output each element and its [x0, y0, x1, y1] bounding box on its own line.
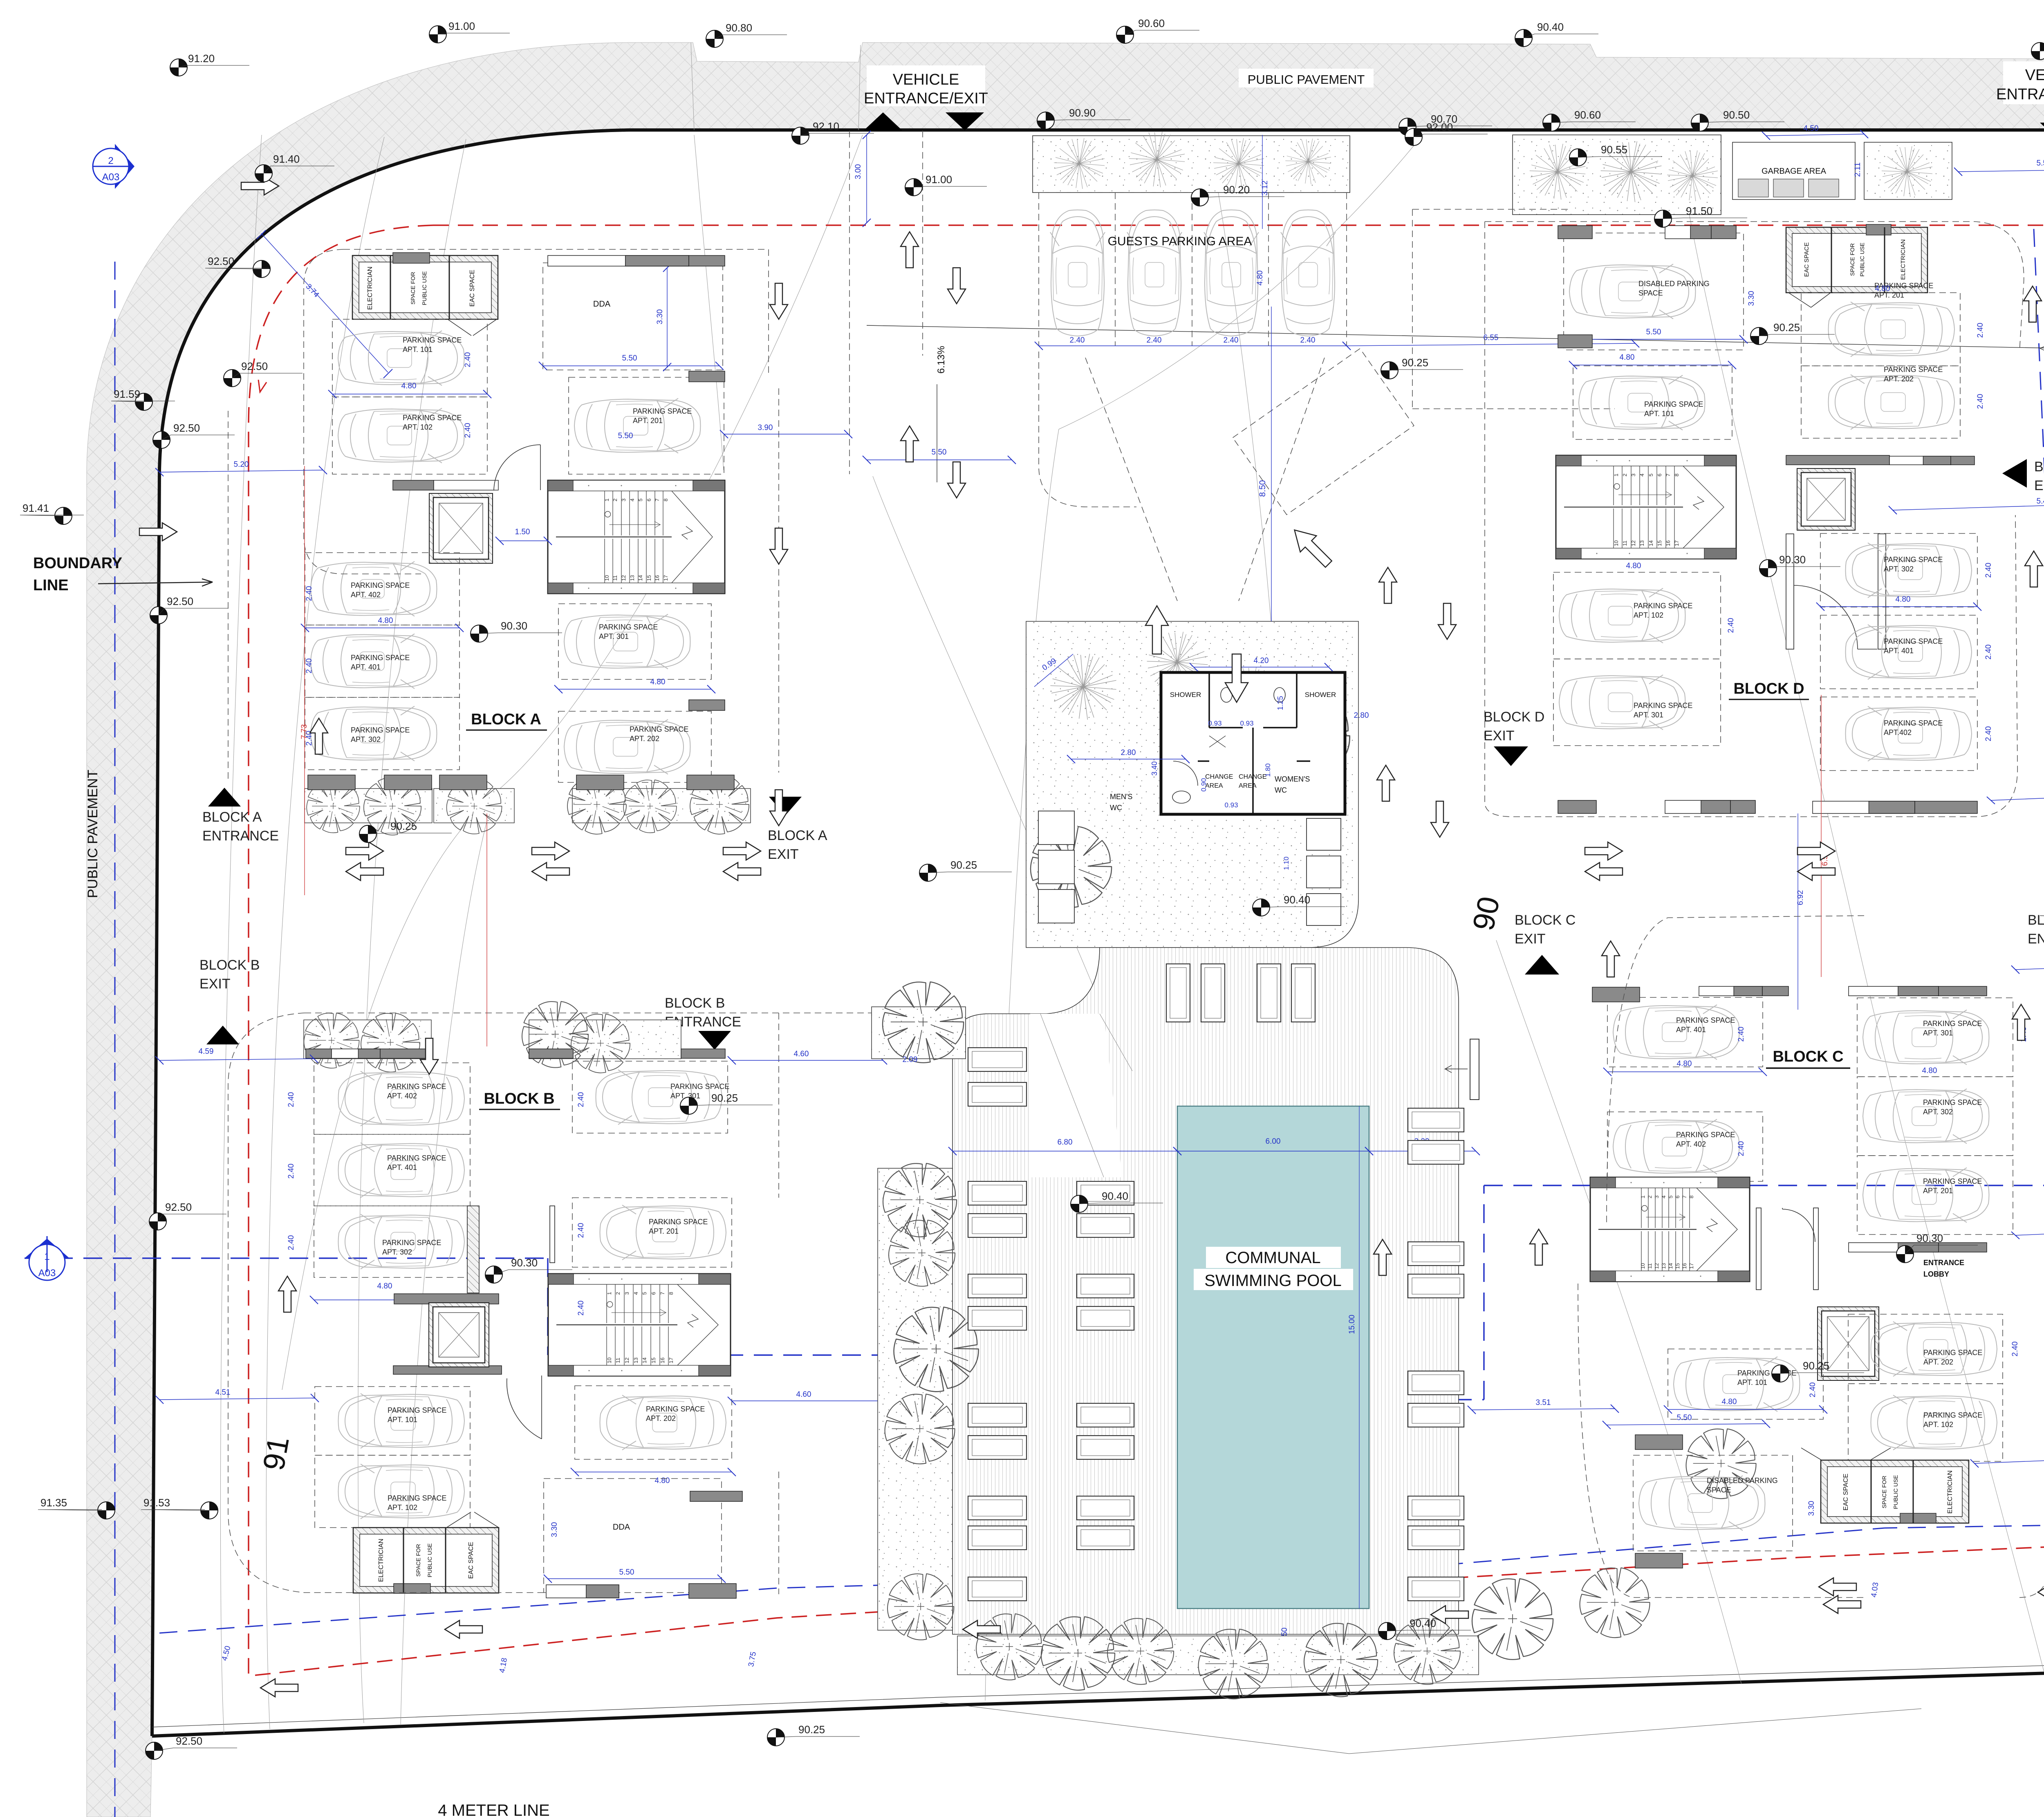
svg-text:3: 3: [1654, 1195, 1660, 1198]
svg-text:APT. 301: APT. 301: [1923, 1029, 1953, 1037]
svg-text:VEHICLE: VEHICLE: [2025, 67, 2044, 84]
svg-text:PUBLIC USE: PUBLIC USE: [1892, 1475, 1899, 1509]
svg-text:0.93: 0.93: [1240, 719, 1253, 727]
svg-text:90.25: 90.25: [1402, 356, 1428, 369]
svg-text:SPACE FOR: SPACE FOR: [1849, 243, 1856, 276]
svg-text:BLOCK B: BLOCK B: [199, 957, 260, 973]
svg-text:APT. 101: APT. 101: [1737, 1378, 1767, 1387]
svg-text:92.00: 92.00: [1426, 121, 1453, 133]
svg-text:APT. 301: APT. 301: [599, 632, 629, 641]
svg-text:4.80: 4.80: [1722, 1398, 1737, 1406]
svg-text:8: 8: [1688, 1195, 1694, 1198]
svg-text:8.50: 8.50: [1258, 480, 1267, 497]
svg-text:4.80: 4.80: [377, 1282, 392, 1290]
svg-text:PUBLIC USE: PUBLIC USE: [426, 1543, 433, 1577]
svg-text:PARKING SPACE: PARKING SPACE: [1884, 365, 1943, 374]
svg-text:90.25: 90.25: [950, 859, 977, 871]
svg-text:90: 90: [1466, 894, 1506, 934]
svg-text:5.50: 5.50: [2037, 159, 2044, 168]
svg-text:SPACE: SPACE: [1707, 1486, 1731, 1494]
svg-text:PARKING SPACE: PARKING SPACE: [387, 1082, 446, 1091]
svg-text:6: 6: [646, 498, 652, 501]
svg-text:DISABLED PARKING: DISABLED PARKING: [1707, 1476, 1778, 1485]
svg-text:CHANGE: CHANGE: [1239, 773, 1266, 780]
svg-text:3: 3: [624, 1292, 630, 1295]
svg-text:92.50: 92.50: [173, 422, 200, 434]
svg-text:ELECTRICIAN: ELECTRICIAN: [1900, 239, 1907, 280]
svg-text:2.40: 2.40: [1976, 394, 1985, 409]
svg-text:5.50: 5.50: [1677, 1414, 1692, 1422]
svg-text:4.60: 4.60: [796, 1390, 811, 1399]
svg-text:14: 14: [1648, 540, 1654, 546]
svg-text:3.30: 3.30: [656, 309, 664, 325]
svg-text:10: 10: [604, 575, 610, 581]
svg-text:4: 4: [1639, 473, 1645, 476]
svg-text:LINE: LINE: [33, 577, 69, 594]
svg-text:CHANGE: CHANGE: [1205, 773, 1233, 780]
svg-text:5.50: 5.50: [618, 432, 633, 440]
svg-text:2.40: 2.40: [1976, 323, 1985, 338]
svg-text:5.50: 5.50: [619, 1568, 634, 1577]
svg-text:ENTRANCE: ENTRANCE: [1923, 1259, 1964, 1267]
svg-text:91: 91: [256, 1434, 296, 1473]
svg-text:11: 11: [612, 575, 618, 581]
svg-text:91.59: 91.59: [114, 388, 140, 400]
svg-text:APT. 102: APT. 102: [403, 423, 433, 431]
svg-text:PARKING SPACE: PARKING SPACE: [1923, 1411, 1982, 1419]
svg-text:BLOCK B: BLOCK B: [665, 995, 725, 1011]
svg-text:5: 5: [637, 498, 643, 501]
svg-text:APT. 202: APT. 202: [1923, 1358, 1953, 1366]
svg-text:11: 11: [615, 1358, 621, 1363]
svg-text:APT. 201: APT. 201: [1923, 1187, 1953, 1195]
svg-text:PARKING SPACE: PARKING SPACE: [670, 1082, 729, 1091]
svg-text:4.80: 4.80: [1256, 271, 1264, 286]
svg-text:MEN'S: MEN'S: [1110, 793, 1132, 801]
svg-text:PARKING SPACE: PARKING SPACE: [646, 1405, 705, 1413]
svg-text:BLOCK A: BLOCK A: [471, 711, 541, 728]
svg-text:PARKING SPACE: PARKING SPACE: [388, 1406, 446, 1414]
svg-text:1: 1: [1640, 1195, 1646, 1198]
svg-text:BLOCK C: BLOCK C: [2028, 912, 2044, 928]
svg-text:4: 4: [629, 498, 635, 501]
svg-text:PARKING SPACE: PARKING SPACE: [351, 581, 410, 589]
svg-text:13: 13: [633, 1358, 639, 1363]
svg-text:90.60: 90.60: [1138, 17, 1165, 29]
svg-text:DISABLED PARKING: DISABLED PARKING: [1638, 280, 1710, 288]
svg-text:3.12: 3.12: [1261, 181, 1269, 196]
svg-text:EXIT: EXIT: [1515, 931, 1546, 947]
svg-text:2: 2: [615, 1292, 621, 1295]
svg-text:APT. 401: APT. 401: [1884, 647, 1914, 655]
svg-text:EAC SPACE: EAC SPACE: [469, 270, 476, 307]
svg-text:4.51: 4.51: [215, 1388, 231, 1397]
svg-text:11: 11: [1622, 540, 1628, 546]
svg-text:91.41: 91.41: [22, 502, 49, 514]
svg-text:2.40: 2.40: [577, 1092, 585, 1107]
svg-text:APT. 402: APT. 402: [387, 1092, 417, 1100]
svg-text:12: 12: [1654, 1263, 1660, 1269]
svg-text:PUBLIC PAVEMENT: PUBLIC PAVEMENT: [85, 770, 101, 898]
svg-text:6: 6: [650, 1292, 657, 1295]
svg-text:4.80: 4.80: [1620, 353, 1635, 362]
svg-text:3.90: 3.90: [758, 423, 773, 432]
svg-text:PUBLIC USE: PUBLIC USE: [1859, 242, 1865, 276]
svg-text:2.40: 2.40: [287, 1164, 296, 1179]
svg-text:8: 8: [668, 1292, 674, 1295]
svg-text:2.40: 2.40: [1984, 563, 1993, 578]
svg-text:A03: A03: [102, 172, 120, 183]
svg-text:1: 1: [1613, 473, 1619, 476]
svg-text:2.11: 2.11: [1853, 162, 1862, 177]
svg-text:WC: WC: [1275, 786, 1287, 794]
svg-text:92.10: 92.10: [813, 120, 839, 132]
svg-text:SPACE FOR: SPACE FOR: [410, 272, 416, 305]
svg-text:3.40: 3.40: [1150, 761, 1159, 775]
svg-text:90.25: 90.25: [798, 1723, 825, 1736]
svg-text:PARKING SPACE: PARKING SPACE: [1884, 637, 1943, 645]
svg-text:92.50: 92.50: [165, 1201, 192, 1213]
svg-text:DDA: DDA: [613, 1523, 630, 1532]
svg-text:2.80: 2.80: [1121, 748, 1136, 757]
svg-text:APT. 302: APT. 302: [382, 1248, 412, 1256]
svg-text:2.40: 2.40: [464, 352, 472, 367]
svg-text:92.50: 92.50: [241, 360, 268, 372]
svg-text:13: 13: [1639, 540, 1645, 546]
svg-text:PARKING SPACE: PARKING SPACE: [1634, 602, 1692, 610]
svg-text:3.51: 3.51: [1536, 1398, 1551, 1407]
svg-text:5.50: 5.50: [622, 354, 637, 363]
svg-text:5.50: 5.50: [1646, 328, 1661, 336]
svg-text:ELECTRICIAN: ELECTRICIAN: [1947, 1470, 1954, 1514]
svg-text:PARKING SPACE: PARKING SPACE: [649, 1218, 708, 1226]
svg-text:91.40: 91.40: [273, 153, 300, 165]
svg-text:4.80: 4.80: [378, 616, 393, 625]
svg-text:PARKING SPACE: PARKING SPACE: [403, 414, 462, 422]
svg-text:5: 5: [1667, 1195, 1674, 1198]
svg-text:ENTRANCE: ENTRANCE: [2028, 931, 2044, 947]
svg-text:APT. 102: APT. 102: [388, 1503, 417, 1512]
svg-text:EAC SPACE: EAC SPACE: [1803, 242, 1810, 277]
svg-text:8: 8: [1674, 473, 1680, 476]
svg-text:5.20: 5.20: [234, 460, 249, 469]
svg-text:5: 5: [1648, 473, 1654, 476]
svg-text:90.30: 90.30: [511, 1257, 538, 1269]
svg-text:PARKING SPACE: PARKING SPACE: [1676, 1016, 1735, 1024]
svg-text:90.60: 90.60: [1574, 109, 1601, 121]
svg-text:90.40: 90.40: [1284, 894, 1310, 906]
svg-text:1: 1: [604, 498, 610, 501]
svg-text:4.20: 4.20: [1254, 656, 1269, 665]
svg-text:4.80: 4.80: [401, 382, 417, 390]
svg-text:PUBLIC PAVEMENT: PUBLIC PAVEMENT: [1248, 72, 1365, 87]
svg-text:7: 7: [654, 498, 660, 501]
svg-text:91.53: 91.53: [143, 1497, 170, 1509]
svg-text:6.80: 6.80: [1058, 1138, 1073, 1147]
svg-text:5.50: 5.50: [932, 448, 947, 457]
svg-text:APT. 402: APT. 402: [351, 591, 381, 599]
svg-text:90.25: 90.25: [1773, 321, 1800, 334]
svg-text:3.30: 3.30: [1807, 1501, 1816, 1516]
svg-text:EXIT: EXIT: [768, 847, 799, 862]
svg-text:PARKING SPACE: PARKING SPACE: [1884, 719, 1943, 727]
svg-text:2.40: 2.40: [577, 1223, 585, 1238]
svg-text:BLOCK C: BLOCK C: [1515, 912, 1576, 928]
svg-text:8: 8: [663, 498, 669, 501]
svg-text:PARKING SPACE: PARKING SPACE: [387, 1154, 446, 1162]
svg-text:APT. 101: APT. 101: [388, 1416, 417, 1424]
svg-text:2: 2: [1622, 473, 1628, 476]
svg-text:2.40: 2.40: [1984, 645, 1993, 660]
svg-text:91.20: 91.20: [188, 52, 215, 65]
svg-text:4: 4: [1661, 1195, 1667, 1198]
svg-text:PARKING SPACE: PARKING SPACE: [1676, 1131, 1735, 1139]
svg-text:92.50: 92.50: [208, 255, 234, 267]
svg-text:PARKING SPACE: PARKING SPACE: [1923, 1098, 1982, 1107]
svg-text:WC: WC: [1110, 804, 1122, 812]
svg-text:1.80: 1.80: [1264, 763, 1272, 777]
svg-text:SPACE FOR: SPACE FOR: [1881, 1476, 1887, 1508]
svg-text:APT. 202: APT. 202: [646, 1414, 676, 1423]
svg-text:PARKING SPACE: PARKING SPACE: [1923, 1019, 1982, 1028]
svg-text:17: 17: [668, 1358, 674, 1363]
svg-text:10: 10: [606, 1358, 612, 1363]
svg-text:12: 12: [624, 1358, 630, 1363]
svg-text:PARKING SPACE: PARKING SPACE: [388, 1494, 446, 1502]
svg-text:PARKING SPACE: PARKING SPACE: [630, 725, 688, 733]
svg-text:APT. 202: APT. 202: [630, 735, 659, 743]
svg-text:ENTRANCE/EXIT: ENTRANCE/EXIT: [864, 90, 988, 107]
svg-text:2.40: 2.40: [1984, 726, 1993, 742]
svg-text:90.25: 90.25: [1803, 1360, 1829, 1372]
svg-text:PARKING SPACE: PARKING SPACE: [1923, 1349, 1982, 1357]
svg-text:2.40: 2.40: [287, 1235, 296, 1250]
svg-text:APT. 402: APT. 402: [1676, 1140, 1706, 1148]
svg-text:BLOCK D: BLOCK D: [2034, 459, 2044, 475]
svg-text:2.40: 2.40: [2011, 1342, 2019, 1357]
svg-text:3: 3: [1630, 473, 1636, 476]
svg-text:7: 7: [1681, 1195, 1688, 1198]
svg-text:EAC SPACE: EAC SPACE: [468, 1542, 475, 1579]
svg-text:SPACE: SPACE: [1638, 289, 1663, 297]
svg-text:GUESTS PARKING AREA: GUESTS PARKING AREA: [1108, 235, 1252, 248]
svg-text:90.25: 90.25: [390, 820, 417, 832]
svg-text:4.60: 4.60: [794, 1050, 809, 1058]
svg-text:2.40: 2.40: [464, 423, 472, 438]
svg-text:14: 14: [641, 1358, 648, 1363]
svg-text:2.40: 2.40: [1147, 336, 1162, 345]
svg-text:BLOCK C: BLOCK C: [1773, 1048, 1843, 1065]
svg-text:10: 10: [1640, 1263, 1646, 1269]
svg-text:15.00: 15.00: [1348, 1315, 1356, 1334]
svg-text:WOMEN'S: WOMEN'S: [1275, 775, 1310, 783]
svg-text:PARKING SPACE: PARKING SPACE: [633, 407, 692, 415]
svg-text:2.40: 2.40: [1809, 1382, 1817, 1398]
svg-text:4.80: 4.80: [1875, 285, 1890, 293]
svg-text:4.80: 4.80: [1626, 562, 1641, 570]
svg-text:2.40: 2.40: [305, 586, 314, 601]
svg-text:COMMUNAL: COMMUNAL: [1225, 1249, 1320, 1267]
svg-text:4.80: 4.80: [655, 1476, 670, 1485]
svg-text:2.40: 2.40: [1224, 336, 1239, 345]
svg-text:5.41: 5.41: [2037, 497, 2044, 506]
svg-text:2: 2: [612, 498, 618, 501]
svg-text:4.80: 4.80: [1896, 595, 1911, 604]
svg-text:2.40: 2.40: [1070, 336, 1085, 345]
svg-text:ELECTRICIAN: ELECTRICIAN: [378, 1539, 385, 1582]
svg-text:6.55: 6.55: [1484, 334, 1499, 342]
svg-text:AREA: AREA: [1239, 782, 1257, 789]
svg-text:PARKING SPACE: PARKING SPACE: [1634, 701, 1692, 710]
svg-text:ENTRANCE: ENTRANCE: [202, 828, 279, 844]
svg-text:90.55: 90.55: [1601, 143, 1627, 156]
svg-text:APT. 302: APT. 302: [1884, 565, 1914, 573]
svg-text:90.50: 90.50: [1723, 109, 1750, 121]
svg-text:0.90: 0.90: [1200, 778, 1208, 791]
svg-text:2.40: 2.40: [1737, 1141, 1746, 1156]
svg-text:SPACE FOR: SPACE FOR: [415, 1544, 421, 1577]
svg-text:AREA: AREA: [1205, 782, 1223, 789]
svg-text:6: 6: [1656, 473, 1663, 476]
svg-text:15: 15: [650, 1358, 657, 1363]
svg-text:12: 12: [1630, 540, 1636, 546]
svg-text:15: 15: [646, 575, 652, 581]
svg-text:APT. 202: APT. 202: [1884, 375, 1914, 383]
svg-text:4: 4: [633, 1292, 639, 1295]
svg-text:14: 14: [637, 575, 643, 581]
svg-text:PARKING SPACE: PARKING SPACE: [599, 623, 658, 631]
svg-text:APT. 101: APT. 101: [403, 345, 433, 354]
svg-text:4.80: 4.80: [1922, 1066, 1937, 1075]
svg-text:90.40: 90.40: [1410, 1617, 1436, 1629]
svg-text:ENTRANCE: ENTRANCE: [2034, 478, 2044, 493]
svg-text:16: 16: [1681, 1263, 1688, 1269]
svg-text:APT. 101: APT. 101: [1644, 410, 1674, 418]
svg-text:PARKING SPACE: PARKING SPACE: [351, 726, 410, 734]
svg-text:90.25: 90.25: [711, 1092, 738, 1104]
svg-text:BLOCK D: BLOCK D: [1733, 680, 1804, 697]
svg-text:3: 3: [621, 498, 627, 501]
svg-text:17: 17: [1674, 540, 1680, 546]
svg-text:APT. 102: APT. 102: [1634, 611, 1663, 619]
svg-text:PUBLIC USE: PUBLIC USE: [421, 271, 428, 305]
svg-text:90.30: 90.30: [501, 620, 527, 632]
svg-text:PARKING SPACE: PARKING SPACE: [351, 654, 410, 662]
svg-text:90.20: 90.20: [1223, 184, 1250, 196]
svg-text:7: 7: [659, 1292, 666, 1295]
svg-text:3.00: 3.00: [854, 164, 863, 179]
svg-text:APT. 201: APT. 201: [633, 417, 663, 425]
svg-text:BLOCK D: BLOCK D: [1484, 709, 1544, 725]
svg-text:90.80: 90.80: [726, 22, 752, 34]
svg-text:17: 17: [663, 575, 669, 581]
svg-text:6.92: 6.92: [1796, 890, 1805, 905]
svg-text:2: 2: [108, 155, 113, 166]
svg-text:BLOCK A: BLOCK A: [768, 828, 827, 843]
svg-text:APT. 301: APT. 301: [1634, 711, 1663, 719]
svg-text:GARBAGE AREA: GARBAGE AREA: [1762, 167, 1826, 176]
svg-text:2.40: 2.40: [1727, 618, 1735, 633]
svg-text:APT.402: APT.402: [1884, 728, 1912, 737]
svg-text:SHOWER: SHOWER: [1305, 691, 1336, 699]
svg-text:2.40: 2.40: [287, 1092, 296, 1107]
svg-text:4.59: 4.59: [199, 1047, 214, 1056]
svg-text:5: 5: [641, 1292, 648, 1295]
svg-text:16: 16: [1665, 540, 1671, 546]
svg-text:6: 6: [1674, 1195, 1681, 1198]
svg-text:APT. 401: APT. 401: [351, 663, 381, 671]
svg-text:4 METER LINE: 4 METER LINE: [438, 1801, 549, 1817]
svg-text:PARKING SPACE: PARKING SPACE: [1923, 1177, 1982, 1185]
svg-text:APT. 302: APT. 302: [1923, 1108, 1953, 1116]
svg-text:1.50: 1.50: [515, 528, 530, 536]
svg-text:13: 13: [1661, 1263, 1667, 1269]
svg-text:PARKING SPACE: PARKING SPACE: [1644, 400, 1703, 408]
svg-text:91.35: 91.35: [40, 1497, 67, 1509]
svg-text:12: 12: [621, 575, 627, 581]
svg-text:90.90: 90.90: [1069, 107, 1096, 119]
svg-text:11: 11: [1647, 1263, 1653, 1269]
svg-text:3.30: 3.30: [550, 1522, 559, 1537]
svg-text:APT. 201: APT. 201: [649, 1227, 679, 1235]
svg-text:2.09: 2.09: [903, 1055, 918, 1064]
svg-text:2.40: 2.40: [1300, 336, 1316, 345]
svg-text:2.40: 2.40: [305, 659, 314, 674]
svg-text:10: 10: [1613, 540, 1619, 546]
svg-text:92.50: 92.50: [176, 1735, 202, 1747]
svg-text:SWIMMING POOL: SWIMMING POOL: [1204, 1272, 1342, 1290]
svg-text:BOUNDARY: BOUNDARY: [33, 555, 122, 572]
svg-text:PARKING SPACE: PARKING SPACE: [382, 1239, 441, 1247]
svg-text:6.13%: 6.13%: [936, 346, 947, 374]
svg-text:1.10: 1.10: [1282, 856, 1290, 870]
svg-text:1.25: 1.25: [1276, 696, 1284, 710]
svg-text:15: 15: [1656, 540, 1663, 546]
svg-text:7: 7: [1665, 473, 1671, 476]
svg-text:EXIT: EXIT: [1484, 728, 1515, 744]
svg-text:BLOCK A: BLOCK A: [202, 809, 262, 825]
svg-text:APT. 302: APT. 302: [351, 735, 381, 744]
svg-text:EXIT: EXIT: [199, 976, 231, 992]
svg-text:ENTRANCE/EXIT: ENTRANCE/EXIT: [1996, 86, 2044, 103]
svg-text:6.00: 6.00: [1266, 1137, 1281, 1146]
svg-text:90.30: 90.30: [1916, 1232, 1943, 1244]
svg-text:4.50: 4.50: [1804, 124, 1819, 133]
svg-text:LOBBY: LOBBY: [1923, 1270, 1949, 1278]
svg-text:SHOWER: SHOWER: [1170, 691, 1201, 699]
svg-text:91.00: 91.00: [926, 173, 952, 186]
svg-text:2.40: 2.40: [1737, 1027, 1746, 1042]
svg-text:EAC SPACE: EAC SPACE: [1842, 1474, 1849, 1510]
svg-text:90.40: 90.40: [1537, 21, 1564, 33]
svg-text:17: 17: [1688, 1263, 1694, 1269]
svg-text:BLOCK B: BLOCK B: [484, 1090, 554, 1107]
svg-text:2.40: 2.40: [577, 1301, 585, 1316]
svg-text:2.80: 2.80: [1354, 711, 1369, 720]
svg-text:1: 1: [606, 1292, 612, 1295]
svg-text:92.50: 92.50: [167, 595, 193, 607]
svg-text:ELECTRICIAN: ELECTRICIAN: [367, 267, 374, 310]
svg-text:APT. 401: APT. 401: [387, 1163, 417, 1172]
svg-text:VEHICLE: VEHICLE: [893, 71, 959, 88]
svg-text:APT. 401: APT. 401: [1676, 1026, 1706, 1034]
svg-text:PARKING SPACE: PARKING SPACE: [1884, 556, 1943, 564]
svg-text:3.30: 3.30: [1747, 291, 1756, 306]
svg-text:APT. 102: APT. 102: [1923, 1420, 1953, 1429]
svg-text:16: 16: [659, 1358, 666, 1363]
svg-text:2: 2: [1647, 1195, 1653, 1198]
svg-text:13: 13: [629, 575, 635, 581]
